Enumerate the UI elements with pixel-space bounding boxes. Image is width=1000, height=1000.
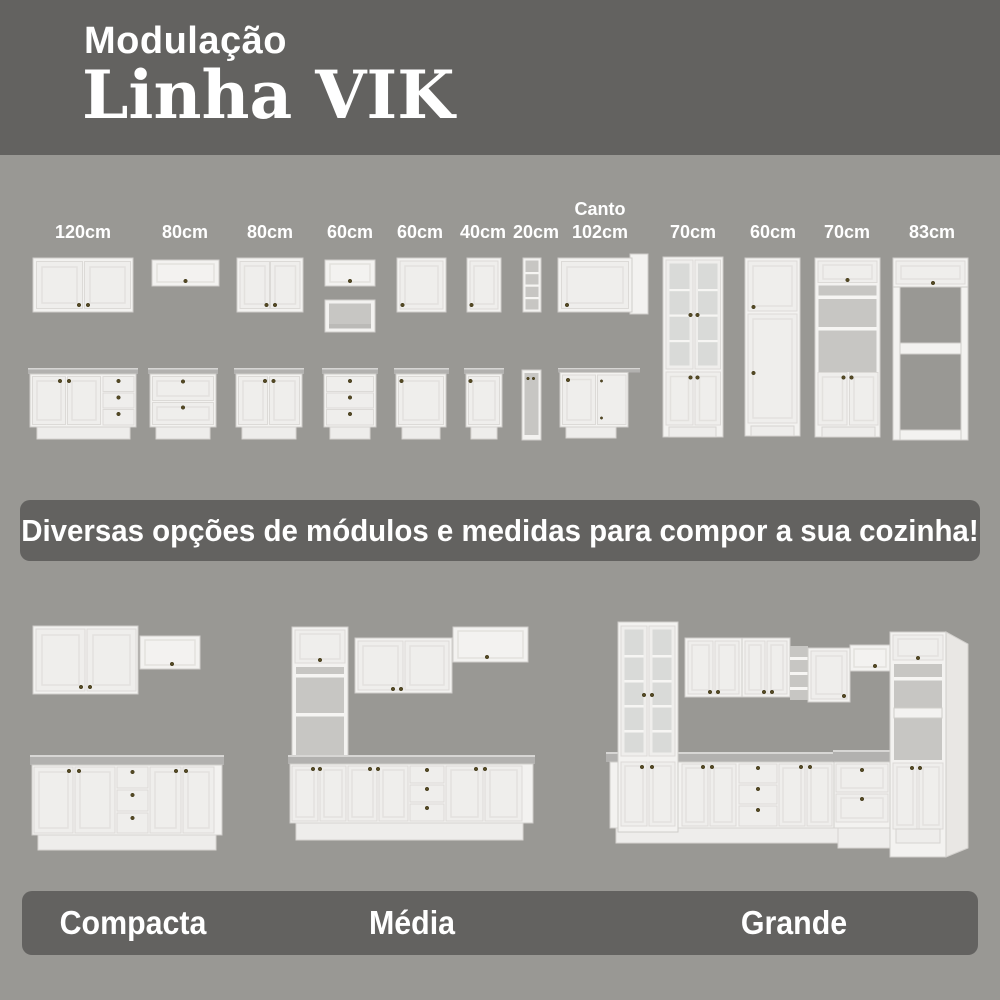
modules-illustration [0,200,1000,485]
module-60cm-pantry-tall-cabinet [745,258,800,436]
top-banner: Modulação Linha VIK [0,0,1000,155]
media-wall-cabinets [355,627,528,693]
module-20cm-cabinets [522,258,541,440]
module-80cm-a-cabinets [148,260,219,439]
module-60cm-b-cabinets [394,258,449,439]
kitchen-label-media: Média [369,904,455,942]
media-base-cabinets [288,755,535,840]
page-title: Linha VIK [82,56,455,134]
compacta-base-cabinets [30,755,224,850]
grande-wall-cabinets [685,638,890,702]
info-banner: Diversas opções de módulos e medidas par… [20,500,980,561]
media-tall-tower [292,627,348,756]
compacta-wall-cabinets [33,626,200,694]
info-banner-text: Diversas opções de módulos e medidas par… [21,513,978,549]
module-canto-102cm-cabinets [558,254,648,438]
module-83cm-fridge-surround-cabinet [893,258,968,440]
kitchen-grande-illustration [598,600,992,890]
module-80cm-b-cabinets [234,258,304,439]
module-120cm-cabinets [28,258,138,439]
module-60cm-a-cabinets [322,260,378,439]
kitchen-compacta-illustration [15,610,245,875]
grande-tall-tower [890,632,968,857]
grande-glass-tall-cabinet [618,622,678,832]
module-70cm-oven-tower-cabinet [815,258,880,437]
kitchen-label-compacta: Compacta [60,904,207,942]
kitchen-label-grande: Grande [741,904,847,942]
kitchen-media-illustration [280,605,560,875]
module-70cm-glass-tall-cabinet [663,257,723,437]
module-40cm-cabinets [464,258,504,439]
